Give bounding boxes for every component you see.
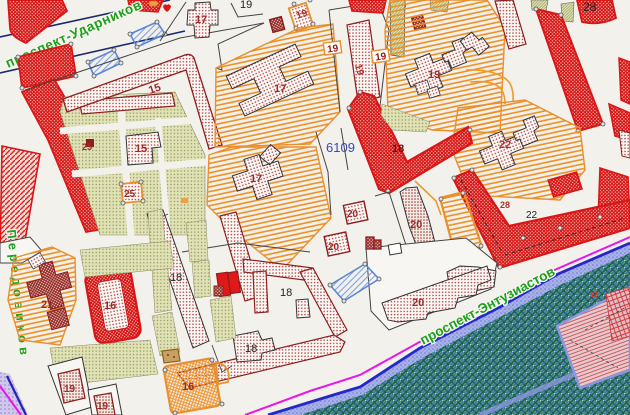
svg-text:18: 18 <box>245 343 257 355</box>
svg-text:28: 28 <box>500 200 510 210</box>
svg-text:25: 25 <box>124 189 136 200</box>
svg-text:19: 19 <box>374 51 387 64</box>
svg-text:18: 18 <box>170 272 182 284</box>
svg-text:21: 21 <box>41 299 53 311</box>
svg-text:19: 19 <box>326 43 339 56</box>
svg-text:19: 19 <box>240 0 252 11</box>
svg-text:20: 20 <box>412 297 424 309</box>
svg-text:20: 20 <box>347 209 359 220</box>
svg-text:17: 17 <box>274 83 286 95</box>
svg-text:25: 25 <box>82 142 92 152</box>
svg-text:19: 19 <box>428 69 440 81</box>
svg-text:22: 22 <box>526 210 538 221</box>
svg-text:18: 18 <box>280 287 292 299</box>
svg-text:15: 15 <box>135 143 147 155</box>
svg-text:19: 19 <box>64 384 76 395</box>
svg-text:16: 16 <box>182 381 194 393</box>
svg-text:28: 28 <box>583 0 597 14</box>
svg-text:17: 17 <box>250 173 262 185</box>
svg-text:16: 16 <box>104 300 116 312</box>
svg-text:19: 19 <box>97 401 109 412</box>
svg-text:6109: 6109 <box>326 140 355 155</box>
svg-text:17: 17 <box>195 14 207 26</box>
svg-text:13: 13 <box>590 292 598 299</box>
svg-text:20: 20 <box>410 219 422 231</box>
svg-text:18: 18 <box>392 143 404 155</box>
svg-text:22: 22 <box>499 139 511 151</box>
svg-text:20: 20 <box>328 242 340 253</box>
